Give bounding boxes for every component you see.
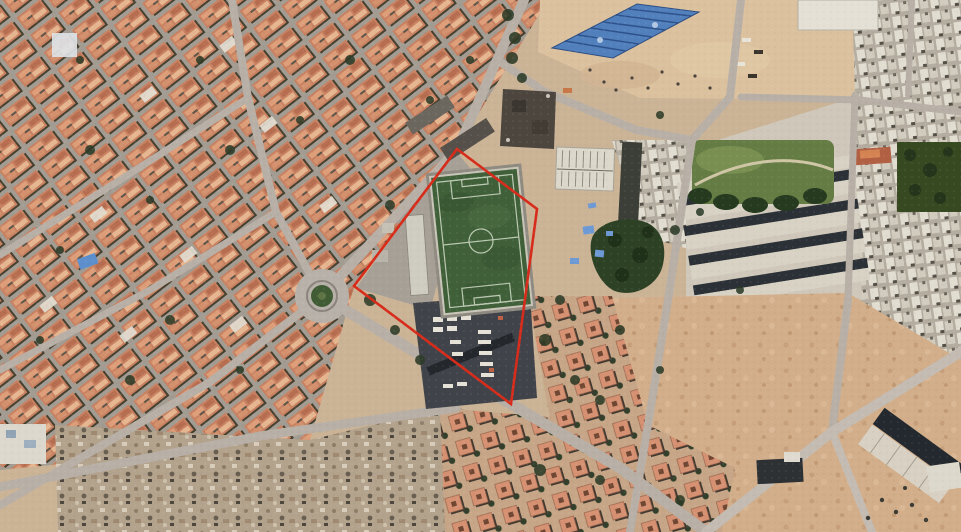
satellite-canvas <box>0 0 961 532</box>
photo-grain-overlay <box>0 0 961 532</box>
satellite-image <box>0 0 961 532</box>
